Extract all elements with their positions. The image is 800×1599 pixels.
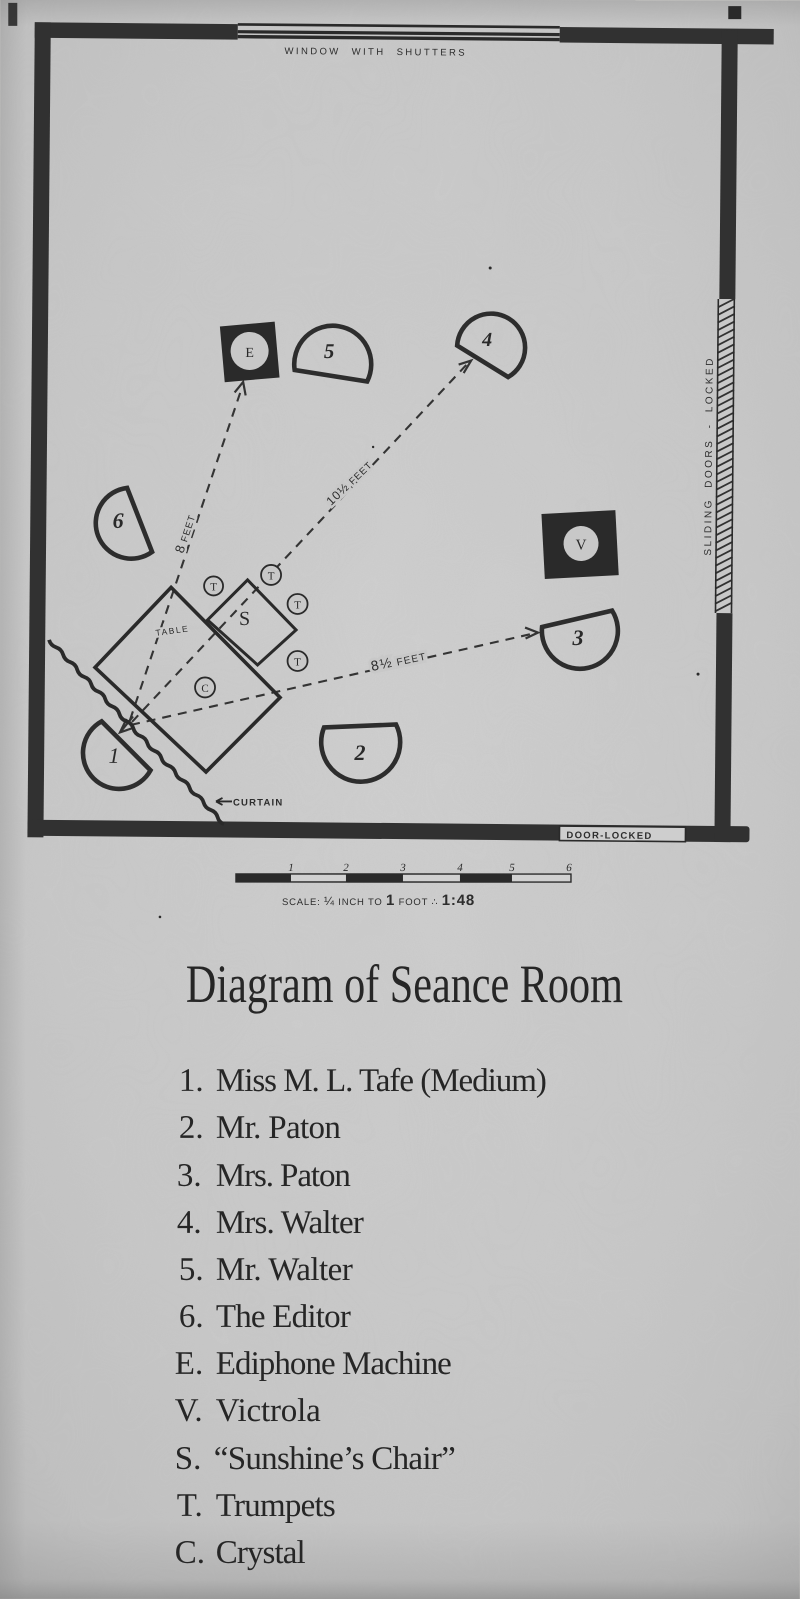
svg-text:CURTAIN: CURTAIN bbox=[233, 797, 283, 808]
svg-text:Miss M. L. Tafe (Medium): Miss M. L. Tafe (Medium) bbox=[216, 1063, 547, 1099]
svg-text:3.: 3. bbox=[177, 1158, 202, 1194]
svg-text:5: 5 bbox=[509, 862, 515, 874]
svg-text:Mr. Paton: Mr. Paton bbox=[216, 1110, 341, 1146]
svg-text:3: 3 bbox=[399, 862, 406, 874]
svg-text:SLIDING DOORS - LOCKED: SLIDING DOORS - LOCKED bbox=[703, 356, 716, 556]
svg-text:6: 6 bbox=[113, 508, 124, 533]
svg-text:Mr. Walter: Mr. Walter bbox=[216, 1252, 353, 1288]
svg-text:1: 1 bbox=[288, 862, 294, 874]
svg-text:6: 6 bbox=[566, 862, 572, 874]
svg-text:2.: 2. bbox=[179, 1110, 204, 1146]
svg-text:V.: V. bbox=[175, 1393, 203, 1429]
svg-text:5: 5 bbox=[324, 339, 335, 363]
svg-text:T: T bbox=[210, 581, 217, 593]
svg-text:5.: 5. bbox=[179, 1252, 204, 1288]
svg-text:Ediphone Machine: Ediphone Machine bbox=[216, 1346, 452, 1382]
svg-text:T: T bbox=[294, 656, 301, 668]
svg-text:T: T bbox=[294, 599, 301, 611]
svg-text:4.: 4. bbox=[177, 1205, 202, 1241]
svg-text:3: 3 bbox=[572, 625, 584, 650]
svg-text:Diagram of Seance Room: Diagram of Seance Room bbox=[186, 954, 623, 1014]
svg-text:2: 2 bbox=[343, 862, 349, 874]
svg-text:Crystal: Crystal bbox=[216, 1535, 306, 1571]
svg-text:The Editor: The Editor bbox=[216, 1299, 351, 1335]
svg-text:T.: T. bbox=[177, 1488, 203, 1524]
svg-text:S: S bbox=[239, 608, 250, 630]
svg-text:1: 1 bbox=[109, 743, 120, 768]
svg-text:V: V bbox=[576, 538, 587, 554]
svg-text:4: 4 bbox=[481, 329, 492, 351]
svg-text:E: E bbox=[245, 346, 254, 361]
svg-text:T: T bbox=[268, 570, 275, 582]
svg-text:Trumpets: Trumpets bbox=[216, 1488, 336, 1524]
svg-text:E.: E. bbox=[175, 1346, 203, 1382]
svg-text:6.: 6. bbox=[179, 1299, 204, 1335]
svg-text:C.: C. bbox=[175, 1535, 205, 1571]
svg-text:C: C bbox=[201, 683, 208, 695]
svg-text:1.: 1. bbox=[179, 1063, 204, 1099]
svg-text:S.: S. bbox=[175, 1441, 202, 1477]
svg-text:Mrs. Paton: Mrs. Paton bbox=[216, 1158, 351, 1194]
svg-text:Victrola: Victrola bbox=[216, 1393, 321, 1429]
svg-text:WINDOW WITH SHUTTERS: WINDOW WITH SHUTTERS bbox=[285, 46, 468, 59]
svg-text:4: 4 bbox=[457, 862, 463, 874]
svg-text:Mrs. Walter: Mrs. Walter bbox=[216, 1205, 364, 1241]
svg-text:2: 2 bbox=[354, 740, 366, 765]
svg-text:DOOR-LOCKED: DOOR-LOCKED bbox=[566, 830, 652, 842]
svg-text:“Sunshine’s Chair”: “Sunshine’s Chair” bbox=[214, 1441, 456, 1477]
